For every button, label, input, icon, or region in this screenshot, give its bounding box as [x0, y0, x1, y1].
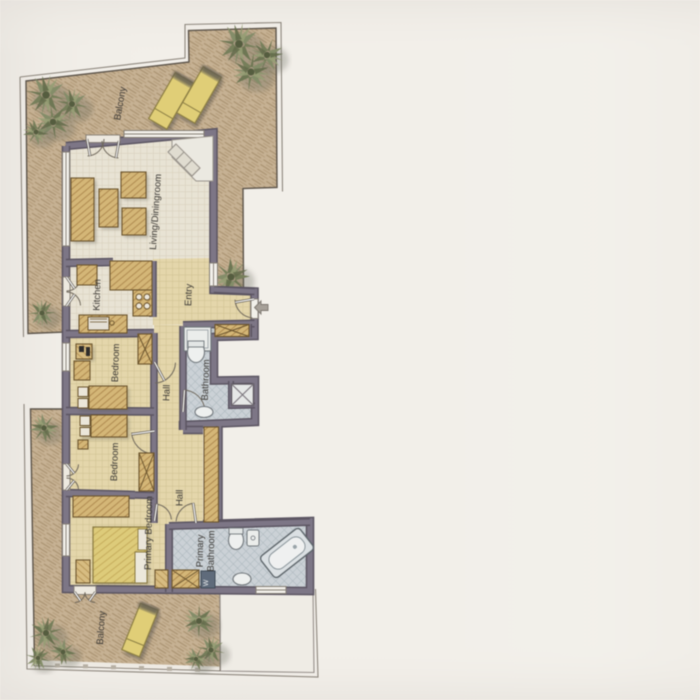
- svg-text:Primary: Primary: [195, 534, 207, 567]
- svg-text:W: W: [203, 579, 210, 586]
- svg-text:Entry: Entry: [183, 283, 195, 306]
- svg-text:Kitchen: Kitchen: [91, 279, 103, 311]
- svg-text:Hall: Hall: [161, 385, 173, 402]
- svg-text:Primary Bedroom: Primary Bedroom: [143, 496, 155, 570]
- svg-text:Bathroom: Bathroom: [200, 359, 212, 401]
- svg-text:Bathroom: Bathroom: [206, 530, 218, 571]
- svg-text:Hall: Hall: [174, 490, 185, 507]
- svg-text:Bedroom: Bedroom: [109, 442, 121, 481]
- svg-text:Bedroom: Bedroom: [110, 343, 122, 382]
